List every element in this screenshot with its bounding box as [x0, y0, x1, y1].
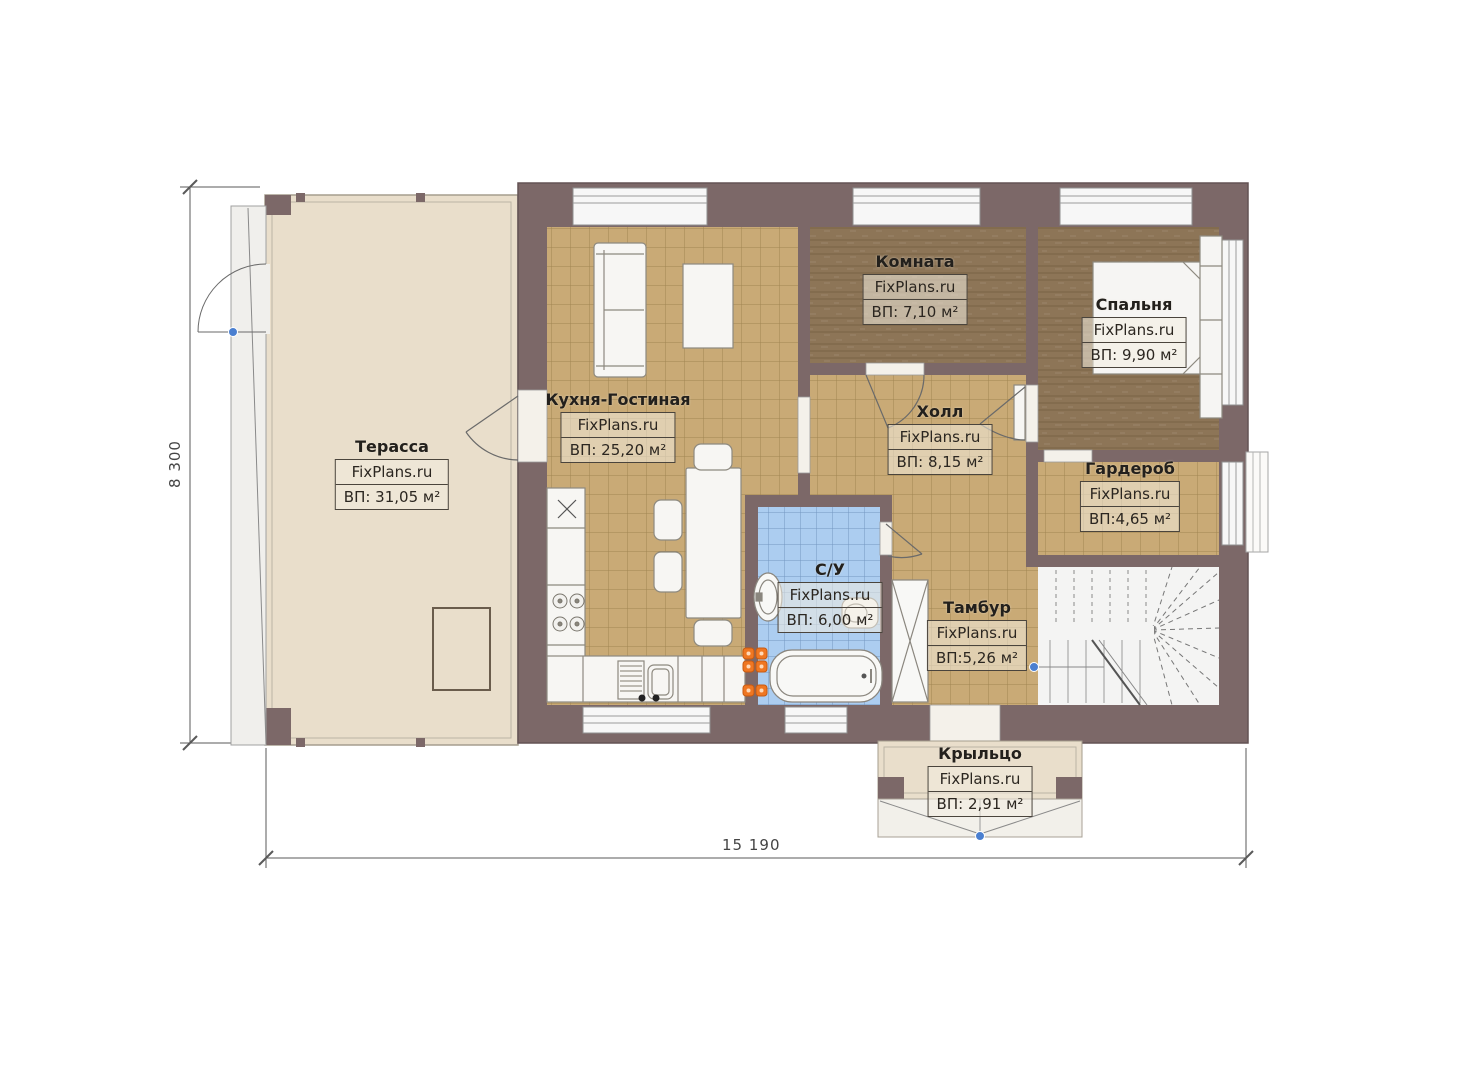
- watermark: FixPlans.ru: [928, 621, 1026, 645]
- room-name: Спальня: [1082, 295, 1187, 314]
- label-wardrobe: Гардероб FixPlans.ru ВП:4,65 м²: [1080, 459, 1180, 532]
- label-hall: Холл FixPlans.ru ВП: 8,15 м²: [888, 402, 993, 475]
- dining-table: [686, 468, 741, 618]
- label-porch: Крыльцо FixPlans.ru ВП: 2,91 м²: [928, 744, 1033, 817]
- room-name: С/У: [778, 560, 883, 579]
- label-bedroom: Спальня FixPlans.ru ВП: 9,90 м²: [1082, 295, 1187, 368]
- label-room: Комната FixPlans.ru ВП: 7,10 м²: [863, 252, 968, 325]
- level-marker: [976, 832, 985, 841]
- level-marker: [1030, 663, 1039, 672]
- room-area: ВП: 2,91 м²: [929, 791, 1032, 816]
- drying-rack: [618, 661, 644, 699]
- kitchen-counter-bottom: [547, 656, 745, 702]
- watermark: FixPlans.ru: [889, 425, 992, 449]
- room-name: Холл: [888, 402, 993, 421]
- room-name: Гардероб: [1080, 459, 1180, 478]
- room-area: ВП: 8,15 м²: [889, 449, 992, 474]
- watermark: FixPlans.ru: [929, 767, 1032, 791]
- room-name: Кухня-Гостиная: [545, 390, 690, 409]
- floor-plan-drawing: [0, 0, 1474, 1080]
- room-name: Тамбур: [927, 598, 1027, 617]
- room-area: ВП: 7,10 м²: [864, 299, 967, 324]
- kitchen-counter-left: [547, 488, 585, 658]
- floor-plan-page: Терасса FixPlans.ru ВП: 31,05 м² Кухня-Г…: [0, 0, 1474, 1080]
- room-area: ВП: 9,90 м²: [1083, 342, 1186, 367]
- room-name: Комната: [863, 252, 968, 271]
- watermark: FixPlans.ru: [1081, 482, 1179, 506]
- terrace-outside-steps: [231, 206, 266, 745]
- chair: [654, 552, 682, 592]
- room-area: ВП: 6,00 м²: [779, 607, 882, 632]
- room-name: Терасса: [335, 437, 449, 456]
- room-area: ВП: 31,05 м²: [336, 484, 448, 509]
- room-area: ВП:5,26 м²: [928, 645, 1026, 670]
- watermark: FixPlans.ru: [864, 275, 967, 299]
- chair: [654, 500, 682, 540]
- coffee-table: [683, 264, 733, 348]
- watermark: FixPlans.ru: [562, 413, 674, 437]
- label-terrace: Терасса FixPlans.ru ВП: 31,05 м²: [335, 437, 449, 510]
- room-area: ВП: 25,20 м²: [562, 437, 674, 462]
- watermark: FixPlans.ru: [1083, 318, 1186, 342]
- window-sill-outside: [1246, 452, 1268, 552]
- chair: [694, 620, 732, 646]
- room-area: ВП:4,65 м²: [1081, 506, 1179, 531]
- label-vestibule: Тамбур FixPlans.ru ВП:5,26 м²: [927, 598, 1027, 671]
- label-kitchen: Кухня-Гостиная FixPlans.ru ВП: 25,20 м²: [545, 390, 690, 463]
- watermark: FixPlans.ru: [336, 460, 448, 484]
- dimension-width: 15 190: [722, 836, 781, 854]
- bed-headboard: [1200, 236, 1222, 418]
- level-marker: [229, 328, 238, 337]
- room-name: Крыльцо: [928, 744, 1033, 763]
- chair: [694, 444, 732, 470]
- label-bathroom: С/У FixPlans.ru ВП: 6,00 м²: [778, 560, 883, 633]
- watermark: FixPlans.ru: [779, 583, 882, 607]
- dimension-height: 8 300: [166, 429, 184, 499]
